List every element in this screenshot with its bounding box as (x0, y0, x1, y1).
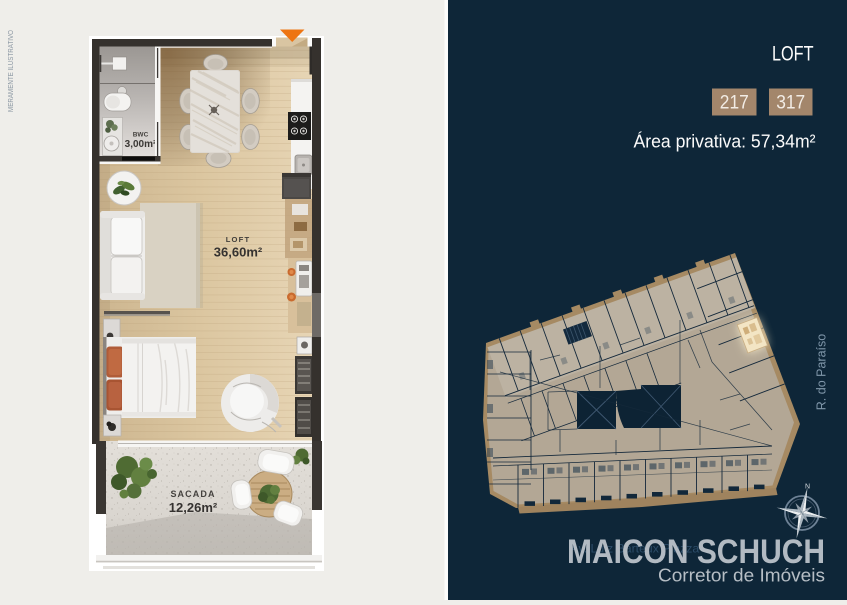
svg-text:3,00m²: 3,00m² (125, 139, 157, 150)
svg-text:217: 217 (720, 93, 749, 114)
svg-text:N: N (805, 484, 810, 491)
svg-text:R. do Paraíso: R. do Paraíso (815, 334, 829, 410)
svg-text:36,60m²: 36,60m² (214, 245, 263, 260)
svg-text:Corretor de Imóveis: Corretor de Imóveis (658, 565, 825, 586)
svg-text:12,26m²: 12,26m² (169, 500, 218, 515)
svg-text:LOFT: LOFT (772, 43, 814, 66)
svg-text:SACADA: SACADA (170, 489, 215, 499)
svg-text:LOFT: LOFT (226, 235, 251, 244)
svg-text:Área privativa: 57,34m²: Área privativa: 57,34m² (634, 132, 816, 152)
svg-text:317: 317 (776, 93, 805, 114)
svg-text:MERAMENTE ILUSTRATIVO: MERAMENTE ILUSTRATIVO (6, 30, 15, 112)
svg-text:BWC: BWC (133, 132, 149, 139)
